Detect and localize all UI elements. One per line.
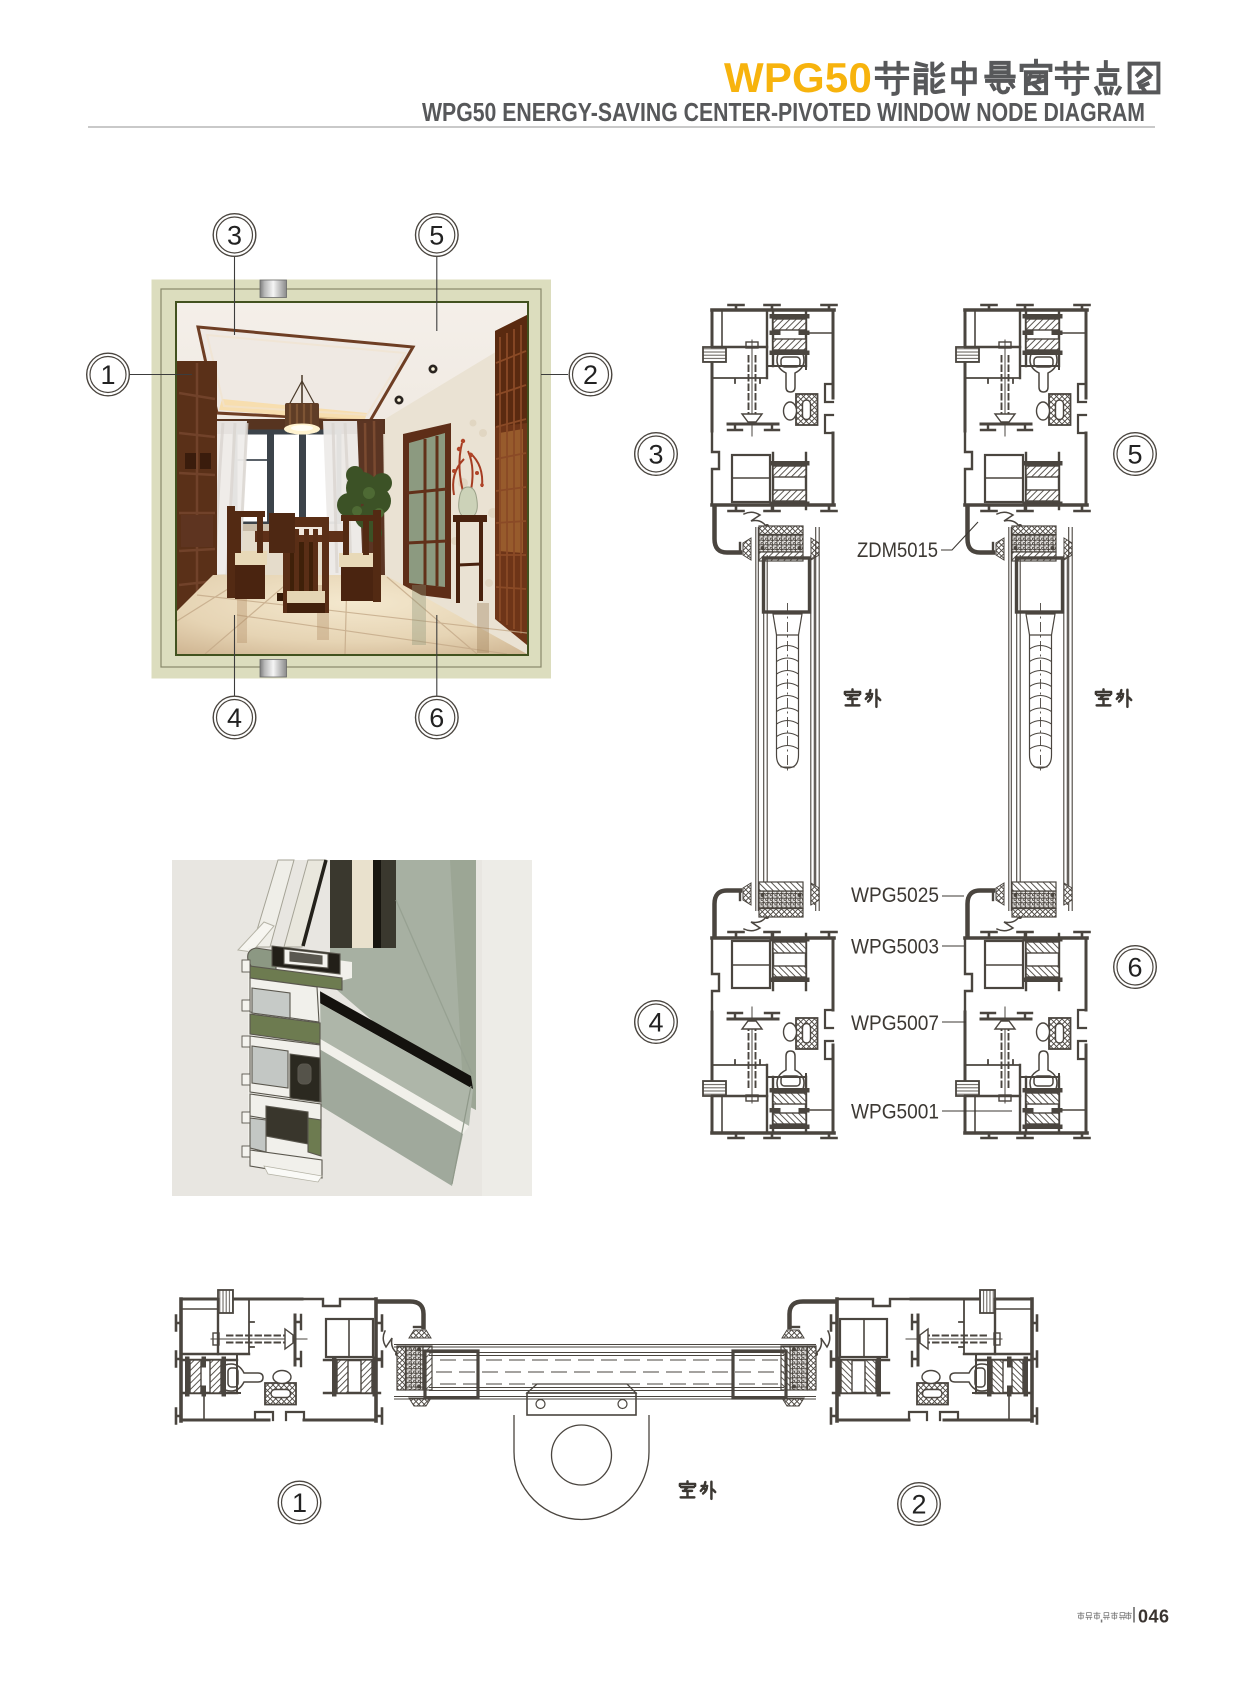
svg-text:WPG5025: WPG5025 — [851, 884, 939, 907]
svg-text:2: 2 — [583, 360, 598, 390]
svg-text:WPG5001: WPG5001 — [851, 1101, 939, 1124]
svg-text:2: 2 — [911, 1490, 926, 1520]
svg-text:1: 1 — [100, 360, 115, 390]
svg-text:WPG50: WPG50 — [724, 54, 872, 101]
svg-text:WPG50 ENERGY-SAVING CENTER-PIV: WPG50 ENERGY-SAVING CENTER-PIVOTED WINDO… — [422, 97, 1145, 127]
svg-text:1: 1 — [292, 1488, 307, 1518]
svg-text:5: 5 — [1127, 440, 1142, 470]
svg-text:4: 4 — [648, 1008, 663, 1038]
svg-text:046: 046 — [1138, 1607, 1170, 1627]
svg-text:6: 6 — [1127, 953, 1142, 983]
svg-text:4: 4 — [227, 703, 242, 733]
svg-text:5: 5 — [429, 221, 444, 251]
svg-text:WPG5003: WPG5003 — [851, 936, 939, 959]
svg-text:3: 3 — [227, 221, 242, 251]
svg-text:ZDM5015: ZDM5015 — [857, 539, 938, 562]
svg-text:WPG5007: WPG5007 — [851, 1012, 939, 1035]
svg-text:3: 3 — [648, 440, 663, 470]
svg-text:6: 6 — [429, 703, 444, 733]
